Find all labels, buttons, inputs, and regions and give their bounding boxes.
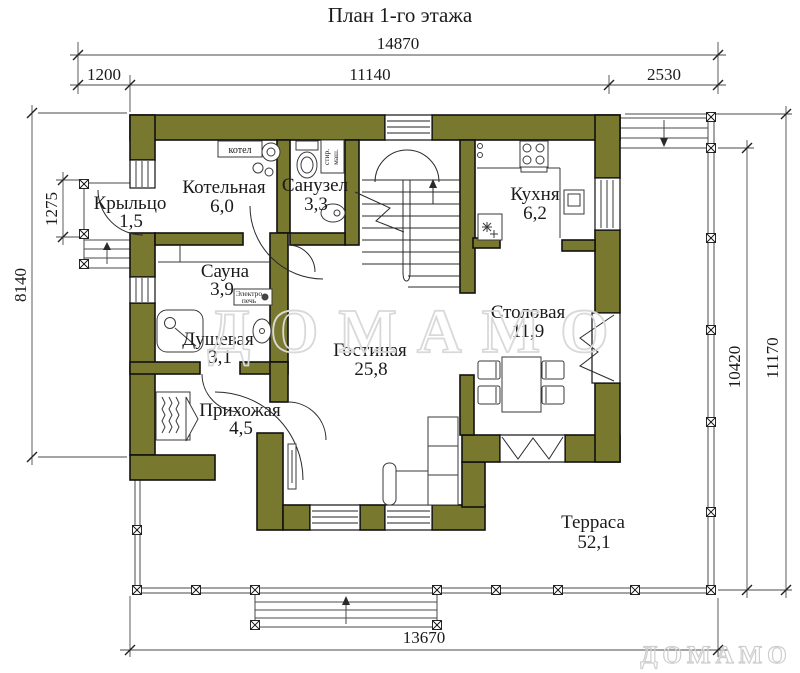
living-room-window-right: [385, 505, 432, 530]
hook-icon: [478, 144, 483, 149]
room-label-bathroom: Санузел: [282, 175, 349, 196]
dim-top-seg-11140: 11140: [349, 65, 390, 84]
floor-plan-drawing: План 1-го этажа 14870 120: [0, 0, 800, 673]
porch-steps-up-arrow: [103, 242, 111, 250]
dim-left-outer: 8140: [11, 268, 30, 302]
page-title: План 1-го этажа: [328, 3, 473, 27]
stairs-window: [385, 115, 432, 140]
kitchen-window: [595, 178, 620, 230]
room-area-boiler: 6,0: [210, 196, 234, 217]
room-area-hallway: 4,5: [229, 418, 253, 439]
sauna-door-arc: [288, 245, 315, 272]
boiler-icon: [262, 143, 280, 161]
hook-icon: [478, 153, 483, 158]
room-area-terrace: 52,1: [577, 532, 610, 553]
living-room-furniture: [288, 417, 458, 505]
room-area-kitchen: 6,2: [523, 203, 547, 224]
room-area-porch: 1,5: [119, 211, 143, 232]
living-room-window-left: [310, 505, 360, 530]
chair-icon: [542, 386, 564, 404]
hall-door-arc: [288, 402, 326, 440]
dim-top-seg-2530: 2530: [647, 65, 681, 84]
dim-right-inner: 10420: [725, 346, 744, 389]
sauna-window: [130, 277, 155, 303]
dim-top-total: 14870: [377, 34, 420, 53]
terrace-entry-steps: [255, 593, 437, 627]
boiler-label: котел: [228, 145, 251, 156]
washer-label-1: стир.: [322, 149, 331, 165]
washer-label-2: маш.: [331, 149, 340, 165]
toilet-tank-icon: [296, 141, 318, 150]
room-label-terrace: Терраса: [561, 512, 625, 533]
terrace-steps-up-arrow: [342, 596, 350, 605]
sofa-icon: [428, 417, 458, 505]
boiler-room-window: [130, 160, 155, 188]
room-area-sauna: 3,9: [210, 279, 234, 300]
room-area-bathroom: 3,3: [304, 194, 328, 215]
watermark-corner: ДОМАМО: [640, 642, 791, 669]
stairs-break-line: [355, 192, 404, 232]
dining-folding-window-south: [500, 435, 565, 462]
dim-bottom-total: 13670: [403, 628, 446, 647]
dim-left-inner: 1275: [42, 192, 61, 226]
wardrobe-arrow: [186, 397, 198, 441]
terrace-steps-down-arrow: [660, 138, 668, 147]
staircase: [355, 150, 460, 287]
room-label-boiler: Котельная: [182, 177, 265, 198]
wardrobe-icon: [156, 392, 190, 440]
hallway-fixtures: [156, 392, 198, 441]
floor-plan-page: План 1-го этажа 14870 120: [0, 0, 800, 673]
dim-top-seg-1200: 1200: [87, 65, 121, 84]
room-label-kitchen: Кухня: [510, 184, 559, 205]
chair-icon: [478, 386, 500, 404]
watermark-center: ДОМАМО: [208, 298, 629, 366]
dim-right-outer: 11170: [763, 337, 782, 378]
